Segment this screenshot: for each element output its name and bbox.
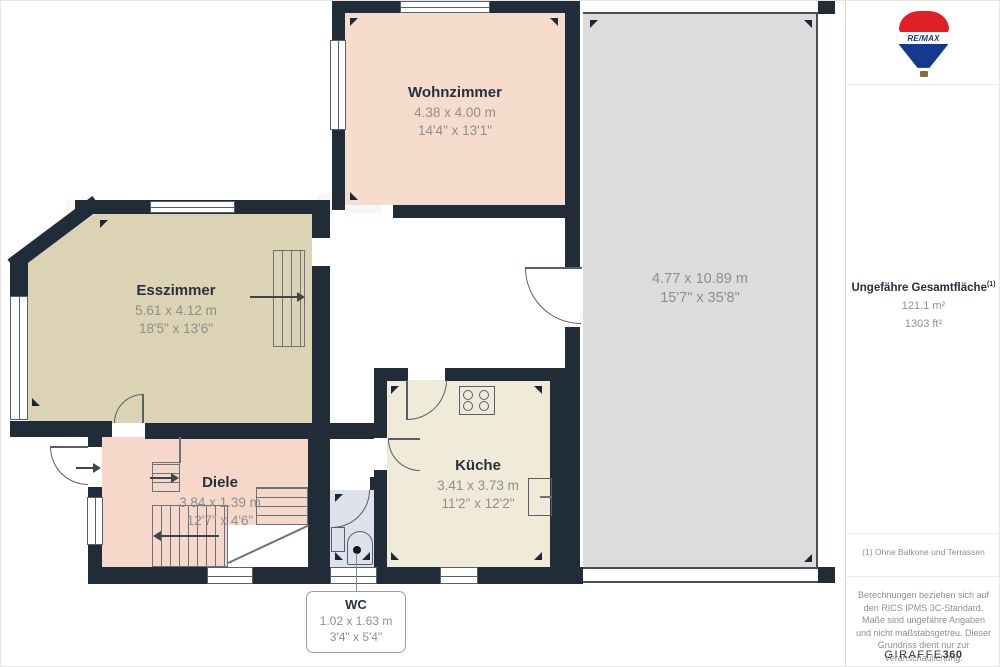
burner-icon bbox=[479, 390, 489, 400]
wall-segment bbox=[385, 368, 408, 381]
window bbox=[400, 1, 490, 13]
giraffe360-logo: GIRAFFE360 bbox=[846, 649, 1000, 661]
room-dim-metric: 4.38 x 4.00 m bbox=[408, 104, 502, 122]
sidebar-divider bbox=[846, 84, 1000, 85]
total-area-superscript: (1) bbox=[987, 281, 996, 288]
sidebar-divider bbox=[846, 576, 1000, 577]
wall-segment bbox=[377, 567, 440, 584]
stove-icon bbox=[459, 386, 495, 415]
room-label-diele: Diele 3.84 x 1.39 m 12'7" x 4'6" bbox=[179, 474, 261, 529]
room-label-esszimmer: Esszimmer 5.61 x 4.12 m 18'5" x 13'6" bbox=[135, 282, 217, 337]
corner-mark bbox=[534, 386, 542, 394]
room-name: Diele bbox=[179, 474, 261, 491]
room-dim-imperial: 11'2" x 12'2" bbox=[437, 495, 519, 513]
wall-opening bbox=[374, 438, 387, 470]
corner-mark bbox=[100, 220, 108, 228]
sidebar-divider bbox=[846, 533, 1000, 534]
room-dim-imperial: 15'7" x 35'8" bbox=[652, 289, 748, 308]
wall-segment bbox=[88, 567, 207, 584]
corner-mark bbox=[350, 192, 358, 200]
window bbox=[87, 497, 103, 545]
room-dim-metric: 3.41 x 3.73 m bbox=[437, 477, 519, 495]
total-area-label: Ungefähre Gesamtfläche(1) bbox=[846, 281, 1000, 294]
room-name: Wohnzimmer bbox=[408, 84, 502, 101]
room-dim-imperial: 14'4" x 13'1" bbox=[408, 122, 502, 140]
stair-rail-line bbox=[179, 437, 181, 463]
door-arc bbox=[50, 447, 88, 485]
staircase-hall-upper bbox=[256, 487, 308, 525]
room-dim-metric: 1.02 x 1.63 m bbox=[309, 614, 403, 630]
corner-mark bbox=[550, 18, 558, 26]
wall-segment bbox=[253, 567, 330, 584]
wall-segment bbox=[374, 368, 387, 584]
room-dim-metric: 3.84 x 1.39 m bbox=[179, 494, 261, 512]
wall-segment bbox=[10, 421, 112, 437]
room-dim-imperial: 3'4" x 5'4" bbox=[309, 630, 403, 646]
remax-balloon-logo: RE/MAX bbox=[898, 11, 950, 79]
area-footnote: (1) Ohne Balkone und Terrassen bbox=[846, 547, 1000, 557]
wc-callout: WC 1.02 x 1.63 m 3'4" x 5'4" bbox=[306, 591, 406, 653]
wall-segment bbox=[550, 368, 565, 584]
sink-icon bbox=[331, 527, 345, 552]
giraffe-360-text: 360 bbox=[943, 649, 963, 661]
room-dim-imperial: 18'5" x 13'6" bbox=[135, 320, 217, 338]
terrace-edge-bottom bbox=[583, 567, 818, 569]
burner-icon bbox=[463, 401, 473, 411]
corner-mark bbox=[804, 554, 812, 562]
corner-mark bbox=[362, 552, 370, 560]
burner-icon bbox=[479, 401, 489, 411]
balloon-top bbox=[899, 11, 949, 33]
window bbox=[330, 567, 377, 584]
wall-segment bbox=[308, 423, 330, 584]
wall-opening bbox=[312, 238, 330, 266]
total-area-label-text: Ungefähre Gesamtfläche bbox=[851, 282, 987, 294]
room-name: WC bbox=[309, 597, 403, 612]
window bbox=[150, 201, 235, 213]
floor-plan: RE/MAX bbox=[0, 0, 845, 667]
burner-icon bbox=[463, 390, 473, 400]
corner-mark bbox=[350, 18, 358, 26]
terrace-edge-top bbox=[583, 12, 818, 14]
window bbox=[207, 567, 253, 584]
wall-segment bbox=[478, 567, 583, 584]
wall-segment bbox=[445, 368, 565, 381]
window bbox=[330, 40, 346, 130]
entrance-arrow-line bbox=[76, 467, 94, 469]
total-area-block: Ungefähre Gesamtfläche(1) 121.1 m² 1303 … bbox=[846, 281, 1000, 330]
wall-segment bbox=[393, 205, 580, 218]
wall-segment bbox=[10, 262, 28, 298]
wall-segment bbox=[370, 477, 387, 490]
corner-mark bbox=[391, 552, 399, 560]
total-area-ft2: 1303 ft² bbox=[846, 318, 1000, 330]
room-dim-metric: 4.77 x 10.89 m bbox=[652, 270, 748, 289]
corner-mark bbox=[804, 20, 812, 28]
stair-direction-arrow bbox=[153, 531, 161, 541]
callout-leader-line bbox=[356, 553, 357, 592]
stair-direction-arrow bbox=[171, 473, 179, 483]
room-label-wohnzimmer: Wohnzimmer 4.38 x 4.00 m 14'4" x 13'1" bbox=[408, 84, 502, 139]
stair-direction-line bbox=[250, 296, 298, 298]
window bbox=[440, 567, 478, 584]
giraffe-text: GIRAFFE bbox=[884, 649, 942, 661]
fridge-door-line bbox=[540, 496, 552, 498]
corner-mark bbox=[32, 398, 40, 406]
total-area-m2: 121.1 m² bbox=[846, 300, 1000, 312]
room-label-kueche: Küche 3.41 x 3.73 m 11'2" x 12'2" bbox=[437, 457, 519, 512]
sidebar: RE/MAX Ungefähre Gesamtfläche(1) 121.1 m… bbox=[845, 0, 1000, 667]
floorplan-page: RE/MAX bbox=[0, 0, 1000, 667]
entrance-arrow bbox=[93, 463, 101, 473]
corner-mark bbox=[590, 20, 598, 28]
terrace-edge-right bbox=[816, 12, 818, 569]
balloon-brand-band: RE/MAX bbox=[898, 32, 950, 45]
room-name: Küche bbox=[437, 457, 519, 474]
balloon-basket bbox=[920, 71, 928, 77]
corner-mark bbox=[534, 552, 542, 560]
corner-mark bbox=[391, 386, 399, 394]
wall-segment bbox=[818, 0, 835, 14]
corner-mark bbox=[335, 552, 343, 560]
stair-direction-line bbox=[150, 477, 172, 479]
stair-direction-arrow bbox=[297, 292, 305, 302]
room-label-terrasse: 4.77 x 10.89 m 15'7" x 35'8" bbox=[652, 270, 748, 308]
corner-mark bbox=[335, 494, 343, 502]
window bbox=[10, 296, 28, 420]
room-dim-metric: 5.61 x 4.12 m bbox=[135, 302, 217, 320]
balloon-bottom bbox=[899, 44, 949, 70]
terrace-railing bbox=[583, 581, 818, 583]
wall-segment bbox=[818, 567, 835, 583]
room-name: Esszimmer bbox=[135, 282, 217, 299]
room-dim-imperial: 12'7" x 4'6" bbox=[179, 512, 261, 530]
stair-direction-line bbox=[161, 535, 219, 537]
